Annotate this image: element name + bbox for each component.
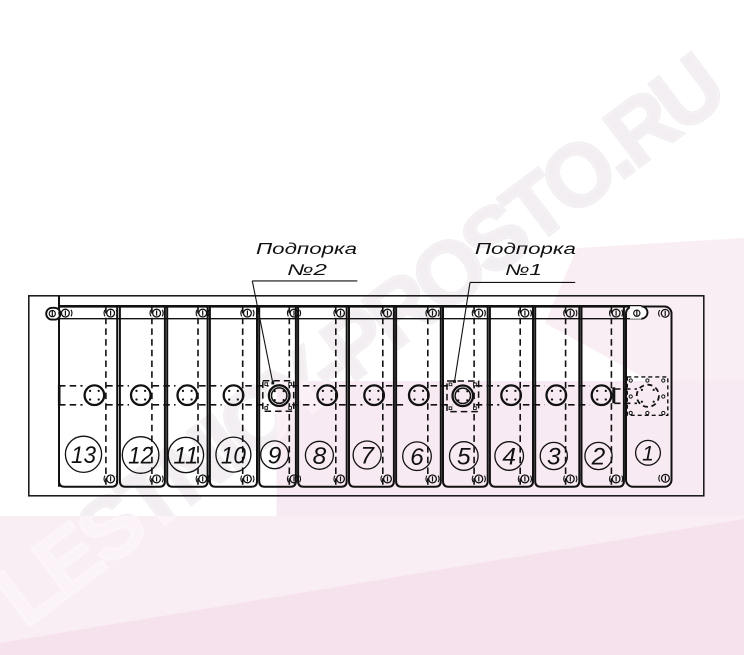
svg-text:Подпорка: Подпорка xyxy=(475,241,577,258)
svg-text:3: 3 xyxy=(547,444,561,471)
svg-text:6: 6 xyxy=(410,444,424,471)
svg-text:4: 4 xyxy=(502,444,516,471)
svg-text:11: 11 xyxy=(173,443,198,470)
svg-text:12: 12 xyxy=(128,443,153,470)
svg-text:7: 7 xyxy=(360,443,375,470)
svg-text:№1: №1 xyxy=(505,262,542,279)
svg-text:5: 5 xyxy=(457,444,471,471)
svg-text:Подпорка: Подпорка xyxy=(256,241,358,258)
svg-text:№2: №2 xyxy=(287,262,328,279)
svg-text:9: 9 xyxy=(268,443,282,470)
svg-text:8: 8 xyxy=(313,443,327,470)
svg-text:2: 2 xyxy=(591,444,606,471)
svg-text:10: 10 xyxy=(221,442,246,469)
svg-text:13: 13 xyxy=(71,442,96,469)
svg-text:1: 1 xyxy=(642,442,654,465)
